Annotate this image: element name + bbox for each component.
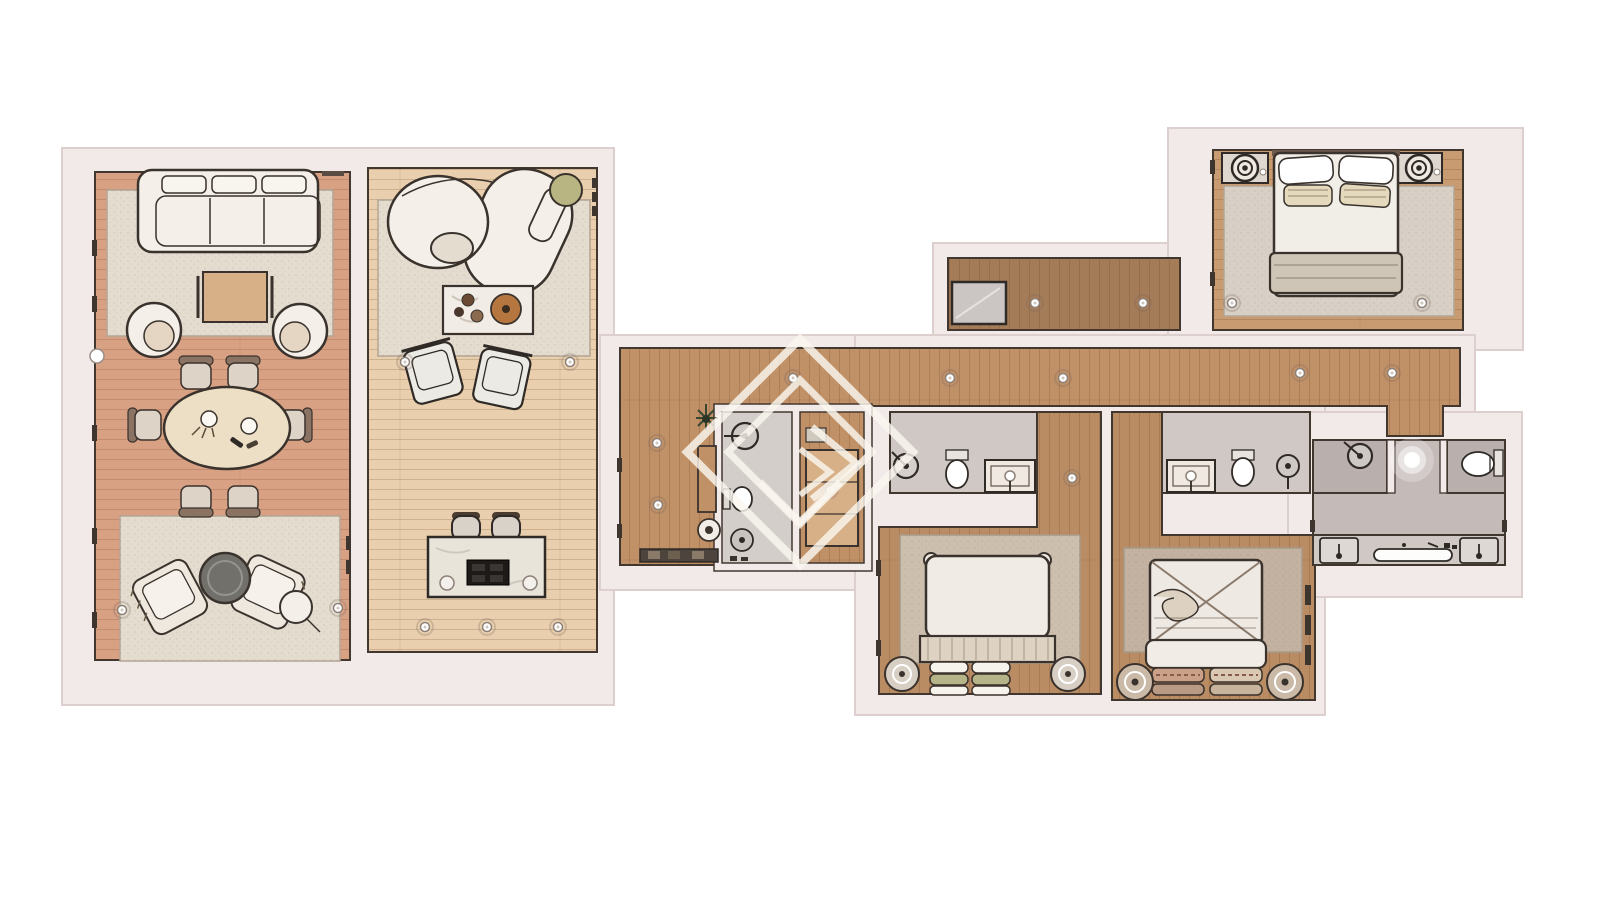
door-hinge-mark bbox=[1310, 520, 1315, 532]
pillow bbox=[930, 662, 968, 673]
dining-table bbox=[164, 387, 290, 469]
table-decor-bowl bbox=[201, 411, 217, 427]
round-nightstand bbox=[1051, 657, 1085, 691]
lamp-dot bbox=[1434, 169, 1440, 175]
wc-partition-wall bbox=[1440, 440, 1447, 493]
cup bbox=[462, 294, 474, 306]
door-hinge-mark bbox=[1210, 160, 1215, 174]
cup bbox=[471, 310, 483, 322]
cup bbox=[454, 307, 464, 317]
round-nightstand bbox=[1117, 664, 1153, 700]
door-hinge-mark bbox=[876, 640, 881, 656]
bath-trough bbox=[1374, 549, 1452, 561]
coffee-table-square bbox=[198, 272, 272, 322]
island-sink bbox=[440, 576, 454, 590]
sofa-back-cushion bbox=[212, 176, 256, 193]
bed-double bbox=[1270, 150, 1402, 296]
vanity-lamp bbox=[1186, 471, 1196, 481]
accent-pillow bbox=[1339, 183, 1390, 207]
toilet-tank bbox=[1494, 450, 1503, 476]
room-upper-corridor bbox=[952, 282, 1006, 324]
round-nightstand bbox=[885, 657, 919, 691]
floor-plan-canvas bbox=[0, 0, 1600, 900]
table-decor-bowl bbox=[241, 418, 257, 434]
toilet-bowl bbox=[1462, 452, 1494, 476]
room-living bbox=[90, 170, 351, 661]
mattress bbox=[926, 556, 1049, 638]
vanity-lamp bbox=[1005, 471, 1015, 481]
coffee-table-family bbox=[443, 286, 533, 334]
room-bedroom1 bbox=[1210, 150, 1454, 316]
pillow bbox=[972, 662, 1010, 673]
tray-center bbox=[502, 305, 510, 313]
dining-chair bbox=[226, 356, 260, 389]
pillow bbox=[930, 686, 968, 695]
coffee-table-top bbox=[203, 272, 267, 322]
armchair bbox=[472, 345, 533, 410]
sofa-back-cushion bbox=[262, 176, 306, 193]
dining-chair bbox=[128, 408, 161, 442]
sofa-three-seat bbox=[138, 170, 320, 252]
round-nightstand bbox=[1267, 664, 1303, 700]
dining-chair bbox=[179, 356, 213, 389]
door-hinge-mark bbox=[1502, 520, 1507, 532]
floor-plan-render bbox=[0, 0, 1600, 900]
round-pouf bbox=[550, 174, 582, 206]
lounge-chair-round bbox=[127, 303, 181, 357]
room-bedroom3 bbox=[1117, 548, 1311, 700]
lounge-chair-round bbox=[273, 304, 327, 358]
door-hinge-mark bbox=[876, 560, 881, 576]
pillow bbox=[972, 686, 1010, 695]
wardrobe-rail-marks bbox=[1305, 585, 1311, 665]
lamp-dot bbox=[1260, 169, 1266, 175]
toilet-bowl bbox=[946, 460, 968, 488]
vanity bbox=[985, 460, 1035, 492]
pillow-green bbox=[930, 674, 968, 685]
vanity bbox=[1167, 460, 1215, 492]
table-lamp bbox=[1232, 155, 1258, 181]
sofa-back-cushion bbox=[162, 176, 206, 193]
plant-pot bbox=[702, 415, 710, 423]
island-sink bbox=[523, 576, 537, 590]
room-bedroom2 bbox=[876, 535, 1085, 695]
table-lamp bbox=[1406, 155, 1432, 181]
door-hinge-mark bbox=[1210, 272, 1215, 286]
toilet-tank bbox=[946, 450, 968, 460]
pillow bbox=[1278, 155, 1334, 185]
radiator-marks bbox=[592, 178, 597, 216]
door-knob-mark bbox=[90, 349, 104, 363]
pillow-band bbox=[1146, 640, 1266, 668]
dining-chair bbox=[226, 486, 260, 517]
duvet bbox=[1270, 253, 1402, 293]
accent-pillow bbox=[1210, 684, 1262, 695]
pillow-green bbox=[972, 674, 1010, 685]
accent-pillow bbox=[1152, 684, 1204, 695]
ceiling-light-glow bbox=[1390, 438, 1434, 482]
toilet-bowl bbox=[1232, 458, 1254, 486]
dining-chair bbox=[179, 486, 213, 517]
pillow bbox=[1338, 156, 1393, 185]
